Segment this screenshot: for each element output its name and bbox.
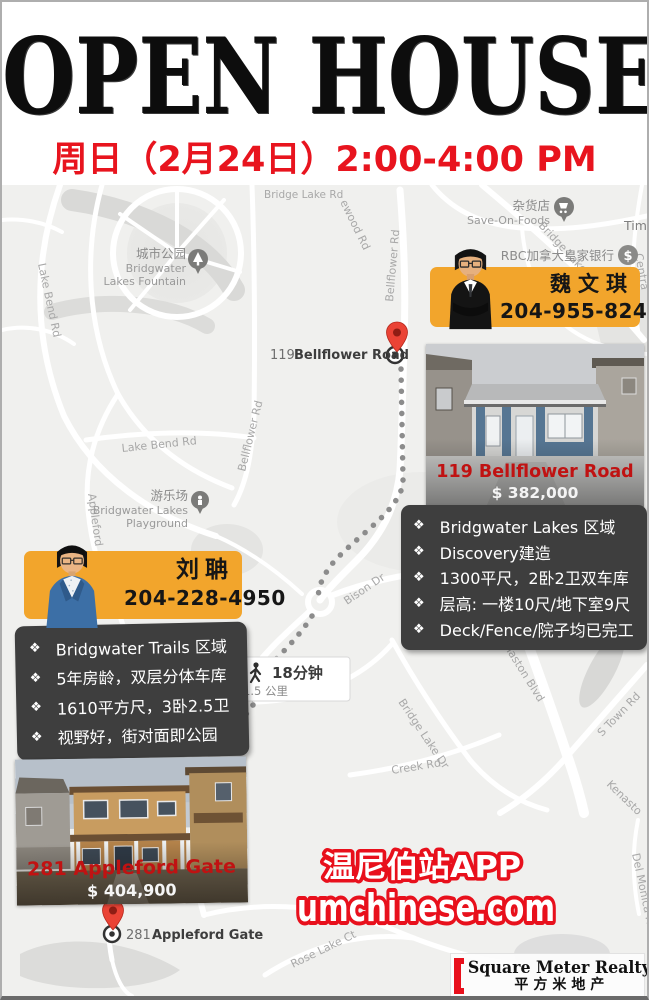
marker-119-name: Bellflower Road (294, 348, 409, 363)
poi-bank-zh: RBC加拿大皇家银行 (501, 248, 614, 263)
road-label: Bellflower Rd (383, 229, 402, 302)
diamond-bullet-icon: ❖ (413, 518, 425, 533)
diamond-bullet-icon: ❖ (30, 671, 42, 686)
road-label: ewood Rd (337, 198, 373, 253)
promo-website: umchinese.com (297, 886, 555, 930)
list-item: ❖1300平尺，2卧2卫双车库 (413, 565, 643, 589)
agent-name: 魏文琪 (500, 271, 634, 298)
poi-fountain-zh: 城市公园 (136, 246, 186, 261)
diamond-bullet-icon: ❖ (413, 544, 425, 559)
photo-address: 119 Bellflower Road (436, 462, 633, 482)
header: OPEN HOUSE 周日（2月24日）2:00-4:00 PM (2, 2, 647, 185)
playground-marker-icon (191, 491, 209, 514)
listing-photo-119: 119 Bellflower Road $ 382,000 (426, 344, 644, 507)
agent-phone: 204-955-8246 (500, 298, 627, 324)
feature-text: 视野好，街对面即公园 (57, 721, 217, 748)
diamond-bullet-icon: ❖ (30, 700, 42, 715)
agent-photo-wei (442, 240, 499, 330)
marker-119-number: 119 (270, 348, 295, 363)
poi-grocery-en: Save-On-Foods (467, 214, 550, 227)
promo-app-name: 温尼伯站APP (323, 850, 521, 885)
photo-address: 281 Appleford Gate (27, 856, 236, 881)
feature-text: 1300平尺，2卧2卫双车库 (440, 565, 629, 589)
walk-duration: 18分钟 (272, 664, 323, 682)
road-label: Creek Rd (390, 756, 441, 777)
diamond-bullet-icon: ❖ (29, 641, 41, 656)
poi-playground-en2: Playground (126, 517, 188, 530)
diamond-bullet-icon: ❖ (413, 622, 425, 637)
list-item: ❖Bridgwater Lakes 区域 (413, 514, 643, 538)
page-title: OPEN HOUSE (2, 24, 647, 129)
event-time: 周日（2月24日）2:00-4:00 PM (2, 131, 647, 182)
agent-portrait-icon (34, 533, 110, 631)
diamond-bullet-icon: ❖ (413, 596, 425, 611)
agent-portrait-icon (442, 240, 499, 330)
walk-info-box: 18分钟 1.5 公里 (238, 657, 350, 701)
feature-text: 层高: 一楼10尺/地下室9尺 (440, 591, 630, 615)
house-photo-281: 281 Appleford Gate $ 404,900 (15, 756, 248, 905)
promo-text: 温尼伯站APP umchinese.com (294, 847, 562, 931)
photo-price: $ 382,000 (492, 484, 579, 502)
feature-list-119: ❖Bridgwater Lakes 区域 ❖Discovery建造 ❖1300平… (401, 505, 647, 650)
diamond-bullet-icon: ❖ (413, 570, 425, 585)
list-item: ❖层高: 一楼10尺/地下室9尺 (413, 591, 643, 615)
list-item: ❖视野好，街对面即公园 (31, 721, 245, 749)
agent-name: 刘聃 (124, 556, 234, 585)
road-label: Rose Lake Ct (289, 928, 359, 971)
promo: 温尼伯站APP umchinese.com (294, 847, 562, 931)
road-label: Del Monica Rd (629, 852, 647, 932)
bank-dollar-icon: $ (618, 245, 638, 265)
list-item: ❖5年房龄，双层分体车库 (29, 662, 243, 690)
poi-fountain-en2: Lakes Fountain (103, 275, 186, 288)
svg-text:$: $ (623, 249, 632, 264)
agent-photo-liu (34, 533, 110, 631)
listing-photo-281: 281 Appleford Gate $ 404,900 (15, 756, 248, 905)
list-item: ❖1610平方尺，3卧2.5卫 (30, 691, 244, 719)
marker-281-name: Appleford Gate (152, 928, 263, 943)
road-label: Bridge Lake Rd (264, 189, 343, 201)
house-photo-119: 119 Bellflower Road $ 382,000 (426, 344, 644, 507)
feature-text: Bridgwater Lakes 区域 (440, 514, 616, 538)
photo-price: $ 404,900 (87, 880, 177, 900)
feature-text: 1610平方尺，3卧2.5卫 (57, 692, 230, 720)
list-item: ❖Discovery建造 (413, 540, 643, 564)
shopping-cart-icon (554, 197, 574, 222)
feature-text: Discovery建造 (440, 540, 551, 564)
feature-list-281: ❖Bridgwater Trails 区域 ❖5年房龄，双层分体车库 ❖1610… (15, 622, 250, 761)
marker-281-number: 281 (126, 928, 151, 943)
list-item: ❖Deck/Fence/院子均已完工 (413, 617, 643, 641)
red-bracket-left-icon (454, 958, 464, 994)
flyer: Lake Bend Rd Lake Bend Rd Bellflower Rd … (0, 0, 649, 1000)
poi-playground-zh: 游乐场 (150, 488, 188, 503)
diamond-bullet-icon: ❖ (31, 730, 43, 745)
list-item: ❖Bridgwater Trails 区域 (29, 632, 243, 660)
brokerage-logo: Square Meter Realty 平方米地产 (450, 953, 645, 998)
feature-text: Deck/Fence/院子均已完工 (440, 617, 634, 641)
map-pin-281 (103, 900, 124, 930)
feature-text: Bridgwater Trails 区域 (55, 633, 227, 661)
poi-fountain-en1: Bridgwater (126, 262, 187, 275)
brokerage-name-zh: 平方米地产 (464, 977, 649, 993)
walk-distance: 1.5 公里 (243, 684, 288, 698)
poi-grocery-zh: 杂货店 (512, 198, 550, 213)
road-label: Kenasto (604, 778, 645, 818)
agent-phone: 204-228-4950 (124, 585, 228, 612)
feature-text: 5年房龄，双层分体车库 (56, 662, 227, 690)
brokerage-name-en: Square Meter Realty (468, 959, 649, 977)
poi-tim: Tim (623, 218, 647, 233)
poi-playground-en1: Bridgwater Lakes (93, 504, 189, 517)
